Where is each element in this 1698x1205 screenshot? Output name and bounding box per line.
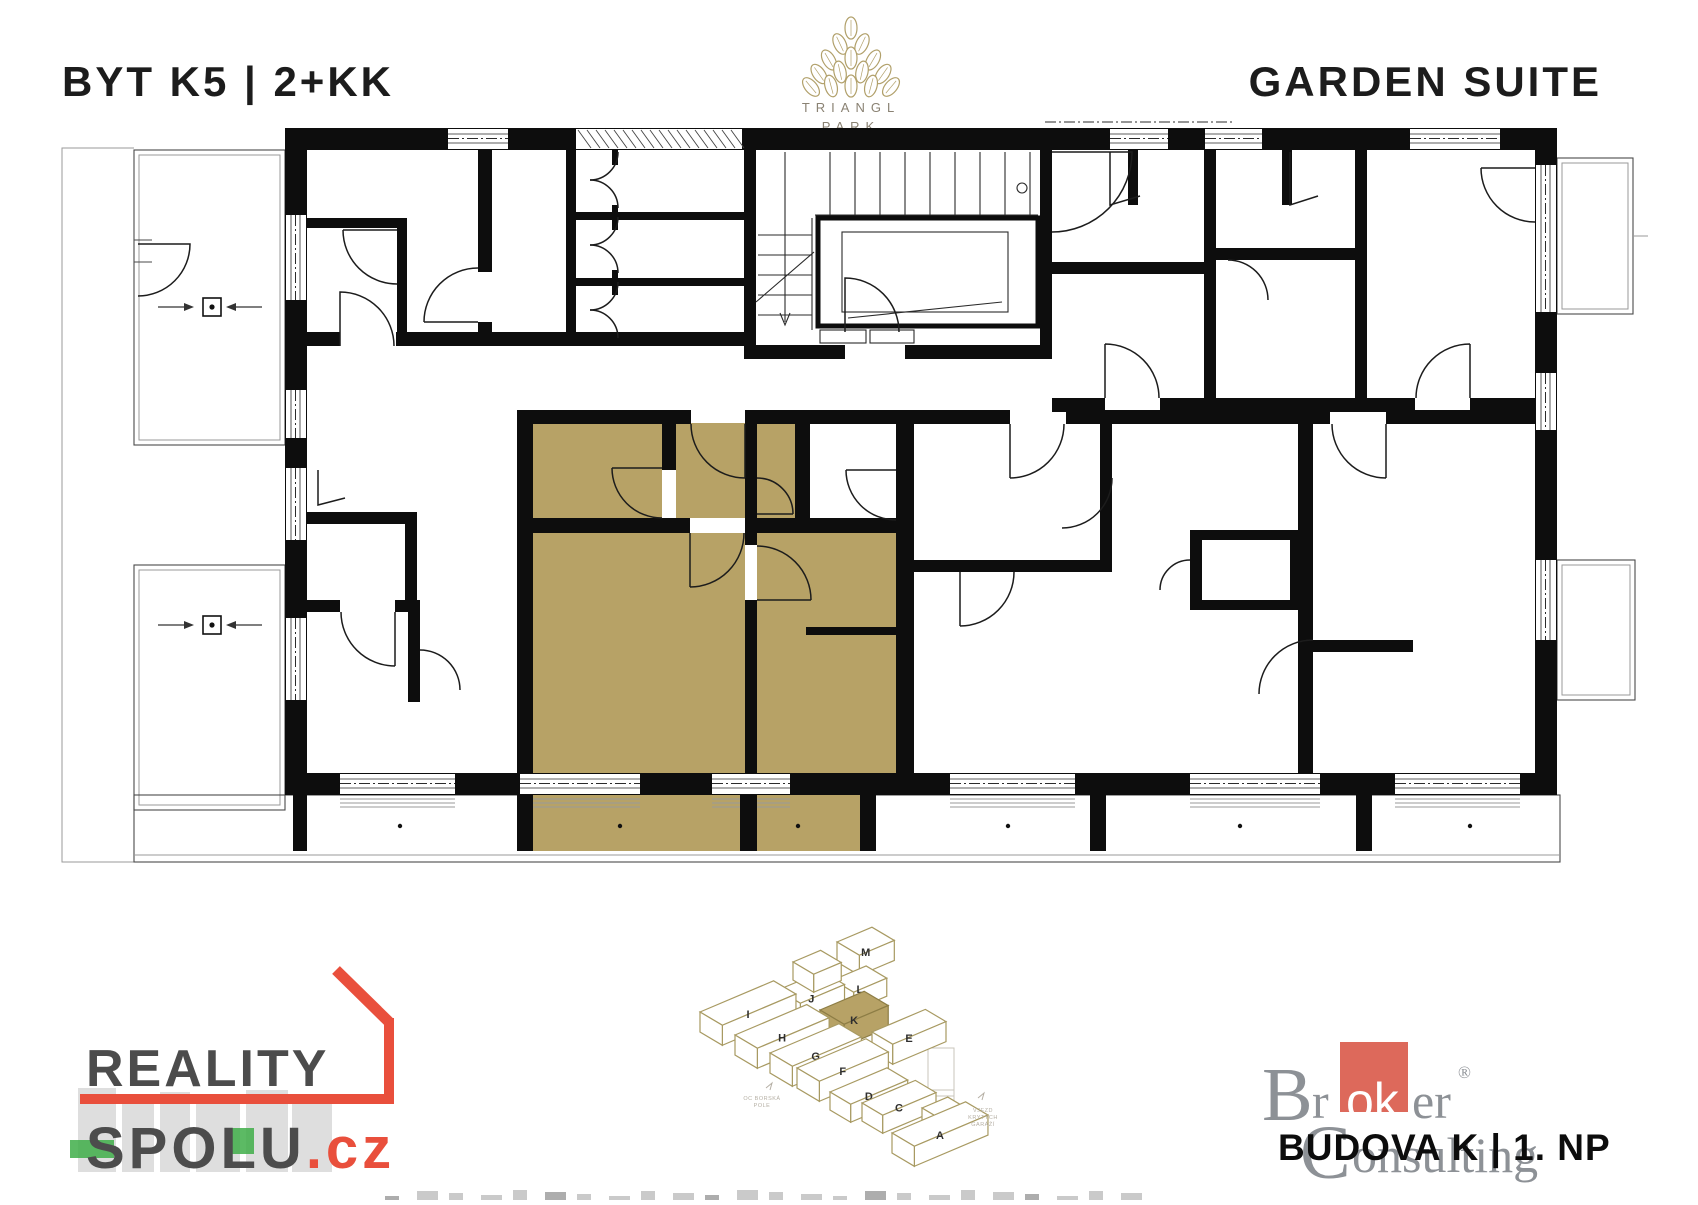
site-building-label: C bbox=[895, 1103, 903, 1115]
site-building-label: J bbox=[808, 993, 814, 1005]
svg-text:ok: ok bbox=[1346, 1073, 1400, 1129]
svg-text:OC BORSKÁ: OC BORSKÁ bbox=[743, 1095, 780, 1102]
svg-text:VJEZD: VJEZD bbox=[973, 1108, 993, 1114]
site-building-label: F bbox=[839, 1066, 846, 1078]
site-building-label: M bbox=[861, 947, 870, 959]
spolu-word: SPOLU.cz bbox=[86, 1116, 395, 1181]
site-building-label: I bbox=[746, 1009, 749, 1021]
elevator bbox=[818, 218, 1038, 343]
brand-line1: TRIANGL bbox=[802, 100, 900, 115]
bedroom-highlight bbox=[757, 533, 896, 773]
site-building-label: H bbox=[778, 1032, 786, 1044]
page-title: BYT K5 | 2+KK bbox=[62, 58, 394, 106]
svg-text:KRYTÝCH: KRYTÝCH bbox=[968, 1114, 998, 1121]
building-floor-label: BUDOVA K | 1. NP bbox=[1278, 1127, 1611, 1169]
reality-word: REALITY bbox=[86, 1040, 329, 1098]
svg-text:®: ® bbox=[1458, 1063, 1471, 1082]
svg-text:GARÁŽÍ: GARÁŽÍ bbox=[971, 1120, 994, 1128]
site-building-label: E bbox=[905, 1033, 912, 1045]
suite-title: GARDEN SUITE bbox=[1249, 58, 1602, 105]
floorplan-sheet: BYT K5 | 2+KK GARDEN SUITE TRIANGL PARK bbox=[0, 0, 1698, 1200]
svg-text:POLE: POLE bbox=[754, 1103, 771, 1109]
site-building-label: K bbox=[850, 1015, 858, 1027]
living-room-highlight bbox=[533, 533, 745, 773]
svg-text:er: er bbox=[1412, 1073, 1451, 1129]
site-building-label: A bbox=[936, 1130, 944, 1142]
